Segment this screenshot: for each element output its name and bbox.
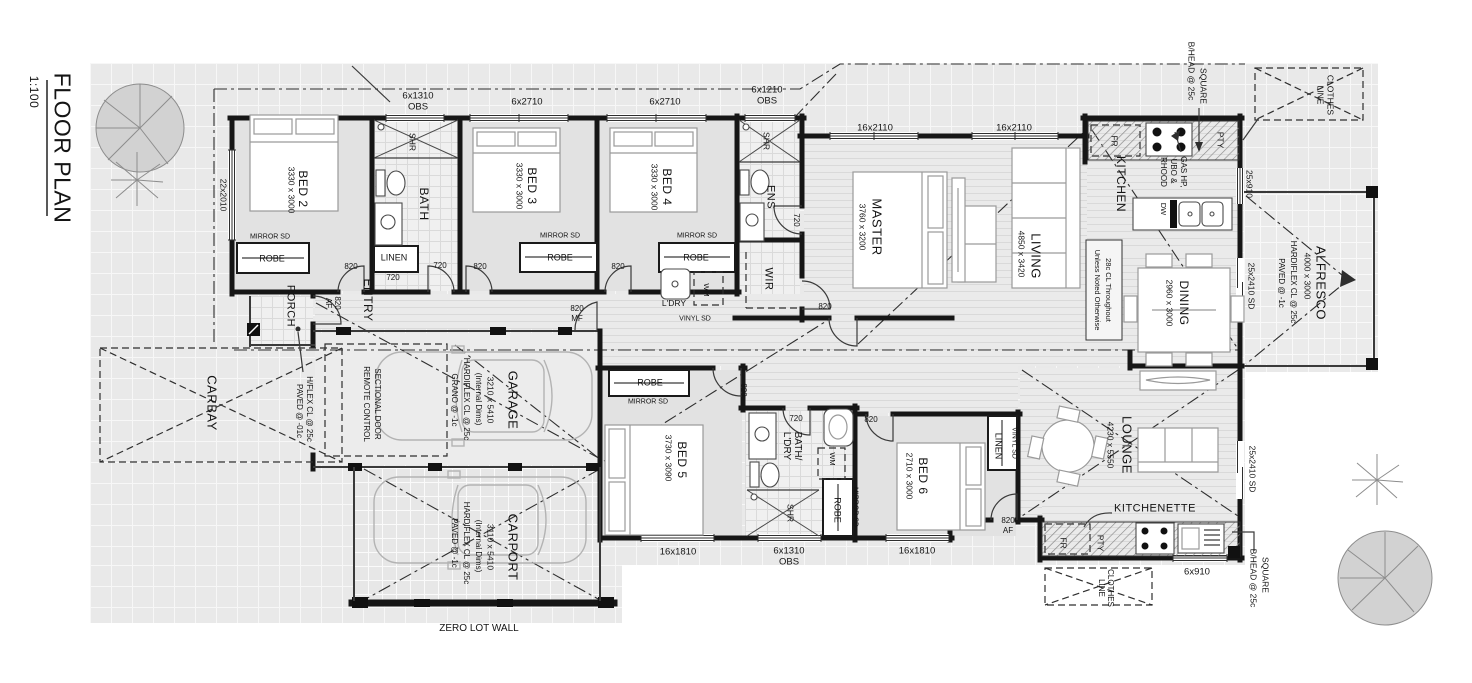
label-wir: WIR <box>763 268 774 291</box>
label-garage-note1: HARDIFLEX CL @ 25c <box>462 358 470 441</box>
label-win-6x2710-a: 6x2710 <box>511 97 542 107</box>
label-vinyl-sd-1: VINYL SD <box>679 316 711 323</box>
label-robe-bathldry: ROBE <box>833 497 842 523</box>
label-master-dims: 3760 x 3200 <box>858 204 867 251</box>
label-win-16x2110-a: 16x2110 <box>857 123 893 133</box>
label-bathldry-1: BATH/ <box>792 432 802 461</box>
label-ens: ENS <box>765 185 776 209</box>
label-garage: GARAGE <box>507 371 520 430</box>
label-garage-int: (Internal Dims) <box>474 373 482 425</box>
label-win-6x910: 6x910 <box>1184 567 1210 577</box>
label-win-25x910: 25x910 <box>1245 170 1254 198</box>
label-carport-int: (Internal Dims) <box>474 520 482 572</box>
label-gas-1: GAS HP, <box>1179 156 1187 187</box>
label-bed6-dims: 2710 x 3000 <box>905 453 914 500</box>
label-door-820-bed2: 820 <box>344 263 357 271</box>
label-scale: 1:100 <box>28 76 40 109</box>
label-garage-door1: REMOTE CONTROL <box>362 366 370 442</box>
beds <box>250 115 985 535</box>
label-win-6x1310-top: 6x1310 <box>402 91 433 101</box>
label-bhead-bot-1: SQUARE <box>1261 557 1270 593</box>
label-alfresco: ALFRESCO <box>1315 246 1328 320</box>
label-door-820-bed5: 820 <box>739 383 747 396</box>
label-wm-2: WM <box>828 452 836 465</box>
label-master: MASTER <box>871 198 884 255</box>
label-lounge-dims: 4230 x 5550 <box>1106 422 1115 469</box>
label-door-820-bed6: 820 <box>864 416 877 424</box>
label-clothes-top-2: LINE <box>1316 86 1325 105</box>
label-shr-bathldry: SHR <box>786 504 795 522</box>
label-door-820-front: 820 <box>333 296 341 309</box>
label-clothes-top-1: CLOTHES <box>1326 75 1335 115</box>
sectional-door-zone <box>325 344 447 456</box>
label-carbay-note2: PAVED @ -01c <box>295 384 303 438</box>
label-fr-kitchenette: FR <box>1059 537 1068 548</box>
label-pty-kitchen: PTY <box>1216 132 1225 149</box>
label-living: LIVING <box>1030 233 1043 279</box>
label-door-720-bathldry: 720 <box>789 415 802 423</box>
label-win-obs-ens: OBS <box>757 96 777 106</box>
label-bed5: BED 5 <box>676 441 688 478</box>
label-win-6x1310-b: 6x1310 <box>773 546 804 556</box>
label-alfresco-note2: PAVED @ -1c <box>1277 258 1285 308</box>
label-win-16x2110-b: 16x2110 <box>996 123 1032 133</box>
label-carport-note2: PAVED @ -1c <box>450 518 458 568</box>
label-bed4-dims: 3330 x 3000 <box>650 164 659 211</box>
label-linen-entry: LINEN <box>381 254 408 263</box>
label-ldry: L'DRY <box>662 299 686 308</box>
label-bed6: BED 6 <box>917 457 929 494</box>
label-bed3: BED 3 <box>526 167 538 204</box>
label-bhead-top-1: SQUARE <box>1199 68 1208 104</box>
label-dim-mf: MF <box>571 315 583 323</box>
label-door-820-lounge: 820 <box>1001 517 1014 525</box>
label-garage-note2: GRANO @ -1c <box>450 373 458 426</box>
kitchenette-bench <box>1042 513 1254 558</box>
label-kitchen: KITCHEN <box>1115 156 1127 212</box>
label-entry: ENTRY <box>362 279 374 322</box>
label-linen-bed6: LINEN <box>994 433 1003 460</box>
label-win-6x2710-b: 6x2710 <box>649 97 680 107</box>
label-door-af-front: AF <box>324 298 332 308</box>
label-win-6x1210: 6x1210 <box>751 85 782 95</box>
label-dw: DW <box>1159 203 1167 216</box>
label-door-820-bed3: 820 <box>473 263 486 271</box>
label-lounge: LOUNGE <box>1121 416 1134 474</box>
label-bath: BATH <box>418 187 430 220</box>
label-mirror-bed2: MIRROR SD <box>250 234 290 241</box>
label-clothes-bot-2: LINE <box>1097 579 1105 597</box>
label-win-obs-b: OBS <box>779 557 799 567</box>
label-door-af-lounge: AF <box>1003 527 1013 535</box>
label-dim-820-mf: 820 <box>570 305 583 313</box>
label-win-obs-top: OBS <box>408 102 428 112</box>
label-door-820-master: 820 <box>818 303 831 311</box>
label-note-2: Unless Noted Otherwise <box>1093 250 1101 331</box>
label-gas-3: RHOOD <box>1159 157 1167 187</box>
label-bed3-dims: 3330 x 3000 <box>515 163 524 210</box>
label-sd-dining: 25x2410 SD <box>1247 263 1256 310</box>
label-carport: CARPORT <box>507 514 520 581</box>
label-alfresco-note1: HARDIFLEX CL @ 25c <box>1289 241 1297 324</box>
label-dining-dims: 2960 x 3000 <box>1165 280 1174 327</box>
label-clothes-bot-1: CLOTHES <box>1106 569 1114 607</box>
label-dim-720-entry: 720 <box>386 274 399 282</box>
label-bhead-top-2: B/HEAD @ 25c <box>1187 42 1196 101</box>
label-robe-bed3: ROBE <box>547 254 573 263</box>
label-pty-kitchenette: PTY <box>1096 535 1105 552</box>
label-fr-kitchen: FR <box>1110 135 1119 146</box>
label-bed2-dims: 3330 x 3000 <box>287 167 296 214</box>
label-carbay-note1: H/FLEX CL @ 25c <box>305 376 313 442</box>
label-bhead-bot-2: B/HEAD @ 25c <box>1249 549 1258 608</box>
label-shr-bath: SHR <box>408 133 417 151</box>
label-alfresco-dims: 4000 x 3000 <box>1303 253 1312 300</box>
label-robe-bed2: ROBE <box>259 255 285 264</box>
label-dining: DINING <box>1178 281 1190 326</box>
label-bed5-dims: 3730 x 3090 <box>664 435 673 482</box>
label-carport-dims: 3110 x 5410 <box>486 524 495 570</box>
clothes-line-top <box>1243 68 1363 140</box>
label-win-16x1810-b: 16x1810 <box>899 546 935 556</box>
label-porch: PORCH <box>285 285 296 327</box>
label-sd-lounge: 25x2410 SD <box>1248 446 1257 493</box>
label-zero-lot-wall: ZERO LOT WALL <box>439 624 518 634</box>
label-mirror-bed5: MIRROR SD <box>628 399 668 406</box>
label-mirror-bed4: MIRROR SD <box>677 233 717 240</box>
floor-plan-page: FLOOR PLAN1:10022x20106x1310OBS6x27106x2… <box>0 0 1472 683</box>
label-living-dims: 4850 x 3420 <box>1017 231 1026 278</box>
label-mirror-bathldry: MIRROR SD <box>852 487 859 527</box>
label-carbay: CARBAY <box>206 375 219 431</box>
label-garage-dims: 3210 x 5410 <box>486 377 495 424</box>
label-mirror-bed3: MIRROR SD <box>540 233 580 240</box>
label-door-820-bed4: 820 <box>611 263 624 271</box>
label-door-720-bath: 720 <box>433 262 446 270</box>
label-bed4: BED 4 <box>661 168 673 205</box>
label-bathldry-2: L'DRY <box>781 432 791 460</box>
label-shr-ens: SHR <box>762 132 771 150</box>
label-garage-door2: SECTIONAL DOOR <box>373 368 381 439</box>
label-bed2: BED 2 <box>297 170 309 207</box>
label-note-1: 28c CL Throughout <box>1104 258 1112 322</box>
label-win-16x1810-a: 16x1810 <box>660 547 696 557</box>
label-robe-bed5: ROBE <box>637 379 663 388</box>
label-win-22x2010: 22x2010 <box>219 179 228 212</box>
label-kitchenette: KITCHENETTE <box>1114 504 1196 515</box>
label-wm-1: WM <box>702 283 710 296</box>
label-title: FLOOR PLAN <box>51 73 74 224</box>
label-door-720-ens: 720 <box>792 213 800 226</box>
label-gas-2: UBO & <box>1169 159 1177 184</box>
car-icon <box>374 346 592 569</box>
label-robe-bed4: ROBE <box>683 254 709 263</box>
label-carport-note1: HARDIFLEX CL @ 25c <box>462 502 470 585</box>
label-vinyl-sd-2: VINYL SD <box>1011 427 1018 459</box>
